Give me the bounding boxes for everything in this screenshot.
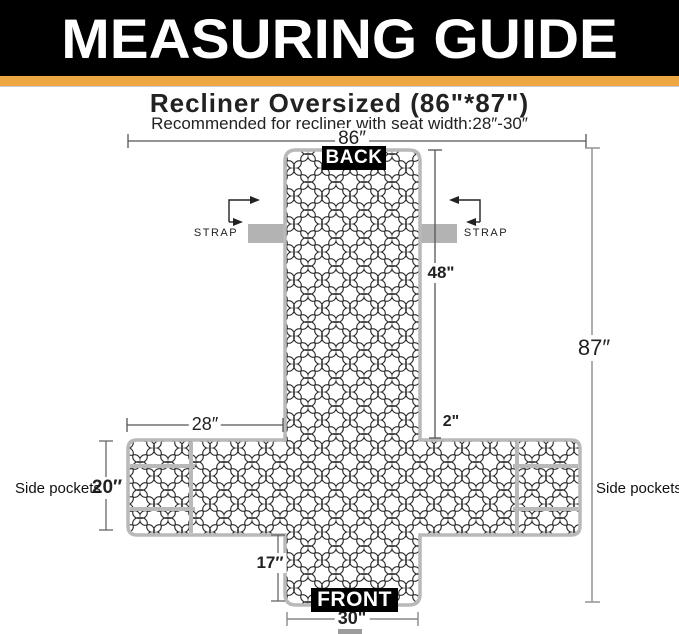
left-strap <box>248 224 286 243</box>
left-strap-label: STRAP <box>194 227 238 239</box>
right-side-pockets-label: Side pockets <box>596 480 679 497</box>
dim-label-48: 48" <box>425 263 458 283</box>
left-strap-arrow <box>229 196 260 226</box>
right-strap <box>420 224 457 243</box>
dim-label-28: 28″ <box>189 414 221 435</box>
measuring-guide-page: MEASURING GUIDE Recliner Oversized (86"*… <box>0 0 679 634</box>
back-tag: BACK <box>322 146 386 170</box>
cropped-artifact <box>338 629 362 634</box>
front-tag: FRONT <box>311 588 398 612</box>
cover-outline <box>128 150 580 605</box>
left-side-pockets-label: Side pockets <box>15 480 101 497</box>
dim-label-17: 17″ <box>253 553 286 573</box>
dim-label-87: 87″ <box>575 335 613 361</box>
dim-line-48 <box>428 150 442 438</box>
dim-label-2: 2" <box>440 413 462 431</box>
dim-line-87 <box>585 148 600 602</box>
right-strap-label: STRAP <box>464 227 508 239</box>
right-strap-arrow <box>449 196 480 226</box>
